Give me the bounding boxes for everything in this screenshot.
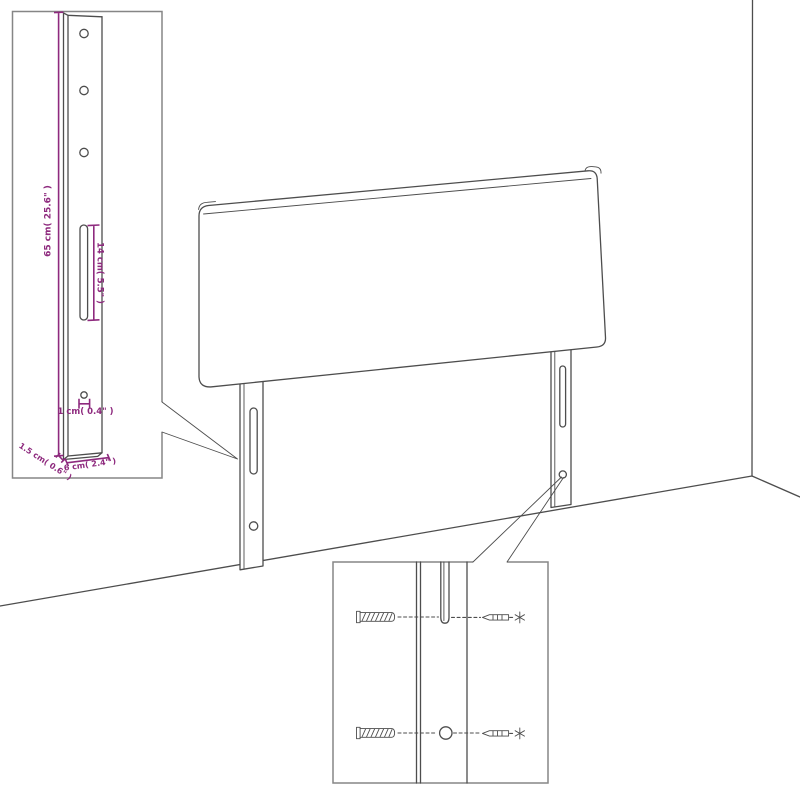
right-leg-slot: [560, 366, 566, 427]
left-leg-hole: [249, 522, 257, 530]
leg-slot-detail: [80, 225, 88, 320]
screw-shank: [483, 615, 509, 620]
screw-threads: [493, 731, 502, 736]
floor-line-left-wall: [0, 476, 752, 606]
dim-line-leg-height: [54, 12, 63, 456]
dim-label-leg-height: 65 cm( 25.6" ): [44, 185, 53, 257]
right-leg: [551, 347, 571, 508]
panel-outline: [199, 171, 606, 387]
wall-plug-icon: [357, 727, 395, 738]
mount-detail-inset: [333, 477, 564, 783]
plug-flange: [357, 727, 361, 738]
left-leg-slot: [250, 408, 257, 474]
screw-icon: [483, 728, 525, 739]
left-leg: [240, 378, 263, 570]
diagram-canvas: 65 cm( 25.6" ) 14 cm( 5.5" ) 1 cm( 0.4" …: [0, 0, 800, 800]
dim-label-slot-length: 14 cm( 5.5" ): [95, 242, 104, 304]
leg-strip-lines: [417, 562, 468, 783]
screw-head-cross: [515, 728, 524, 739]
leg-hole-top: [80, 29, 88, 37]
leg-small-hole: [81, 392, 87, 398]
leg-hole-middle: [80, 86, 88, 94]
wall-corner-line: [752, 0, 753, 476]
plug-thread-hatch: [362, 729, 392, 737]
leg-detail-drawing: [64, 13, 103, 460]
screw-threads: [493, 615, 502, 620]
floor-line-right-wall: [752, 476, 800, 497]
strip-hole: [440, 727, 452, 739]
right-leg-hole: [559, 471, 566, 478]
screw-shank: [483, 731, 509, 736]
leg-top-edge: [64, 13, 103, 17]
plug-flange: [357, 611, 361, 622]
headboard-panel: [199, 167, 606, 387]
screw-icon: [483, 612, 525, 623]
dim-label-hole-diameter: 1 cm( 0.4" ): [58, 407, 114, 416]
strip-slot: [441, 562, 449, 623]
mount-inset-callout-lines: [473, 477, 564, 562]
wall-plug-icon: [357, 611, 395, 622]
assembly-diagram: [0, 0, 800, 800]
leg-hole-lower: [80, 148, 88, 156]
plug-thread-hatch: [362, 613, 392, 621]
leg-inset-callout-lines: [162, 402, 238, 459]
screw-head-cross: [515, 612, 524, 623]
